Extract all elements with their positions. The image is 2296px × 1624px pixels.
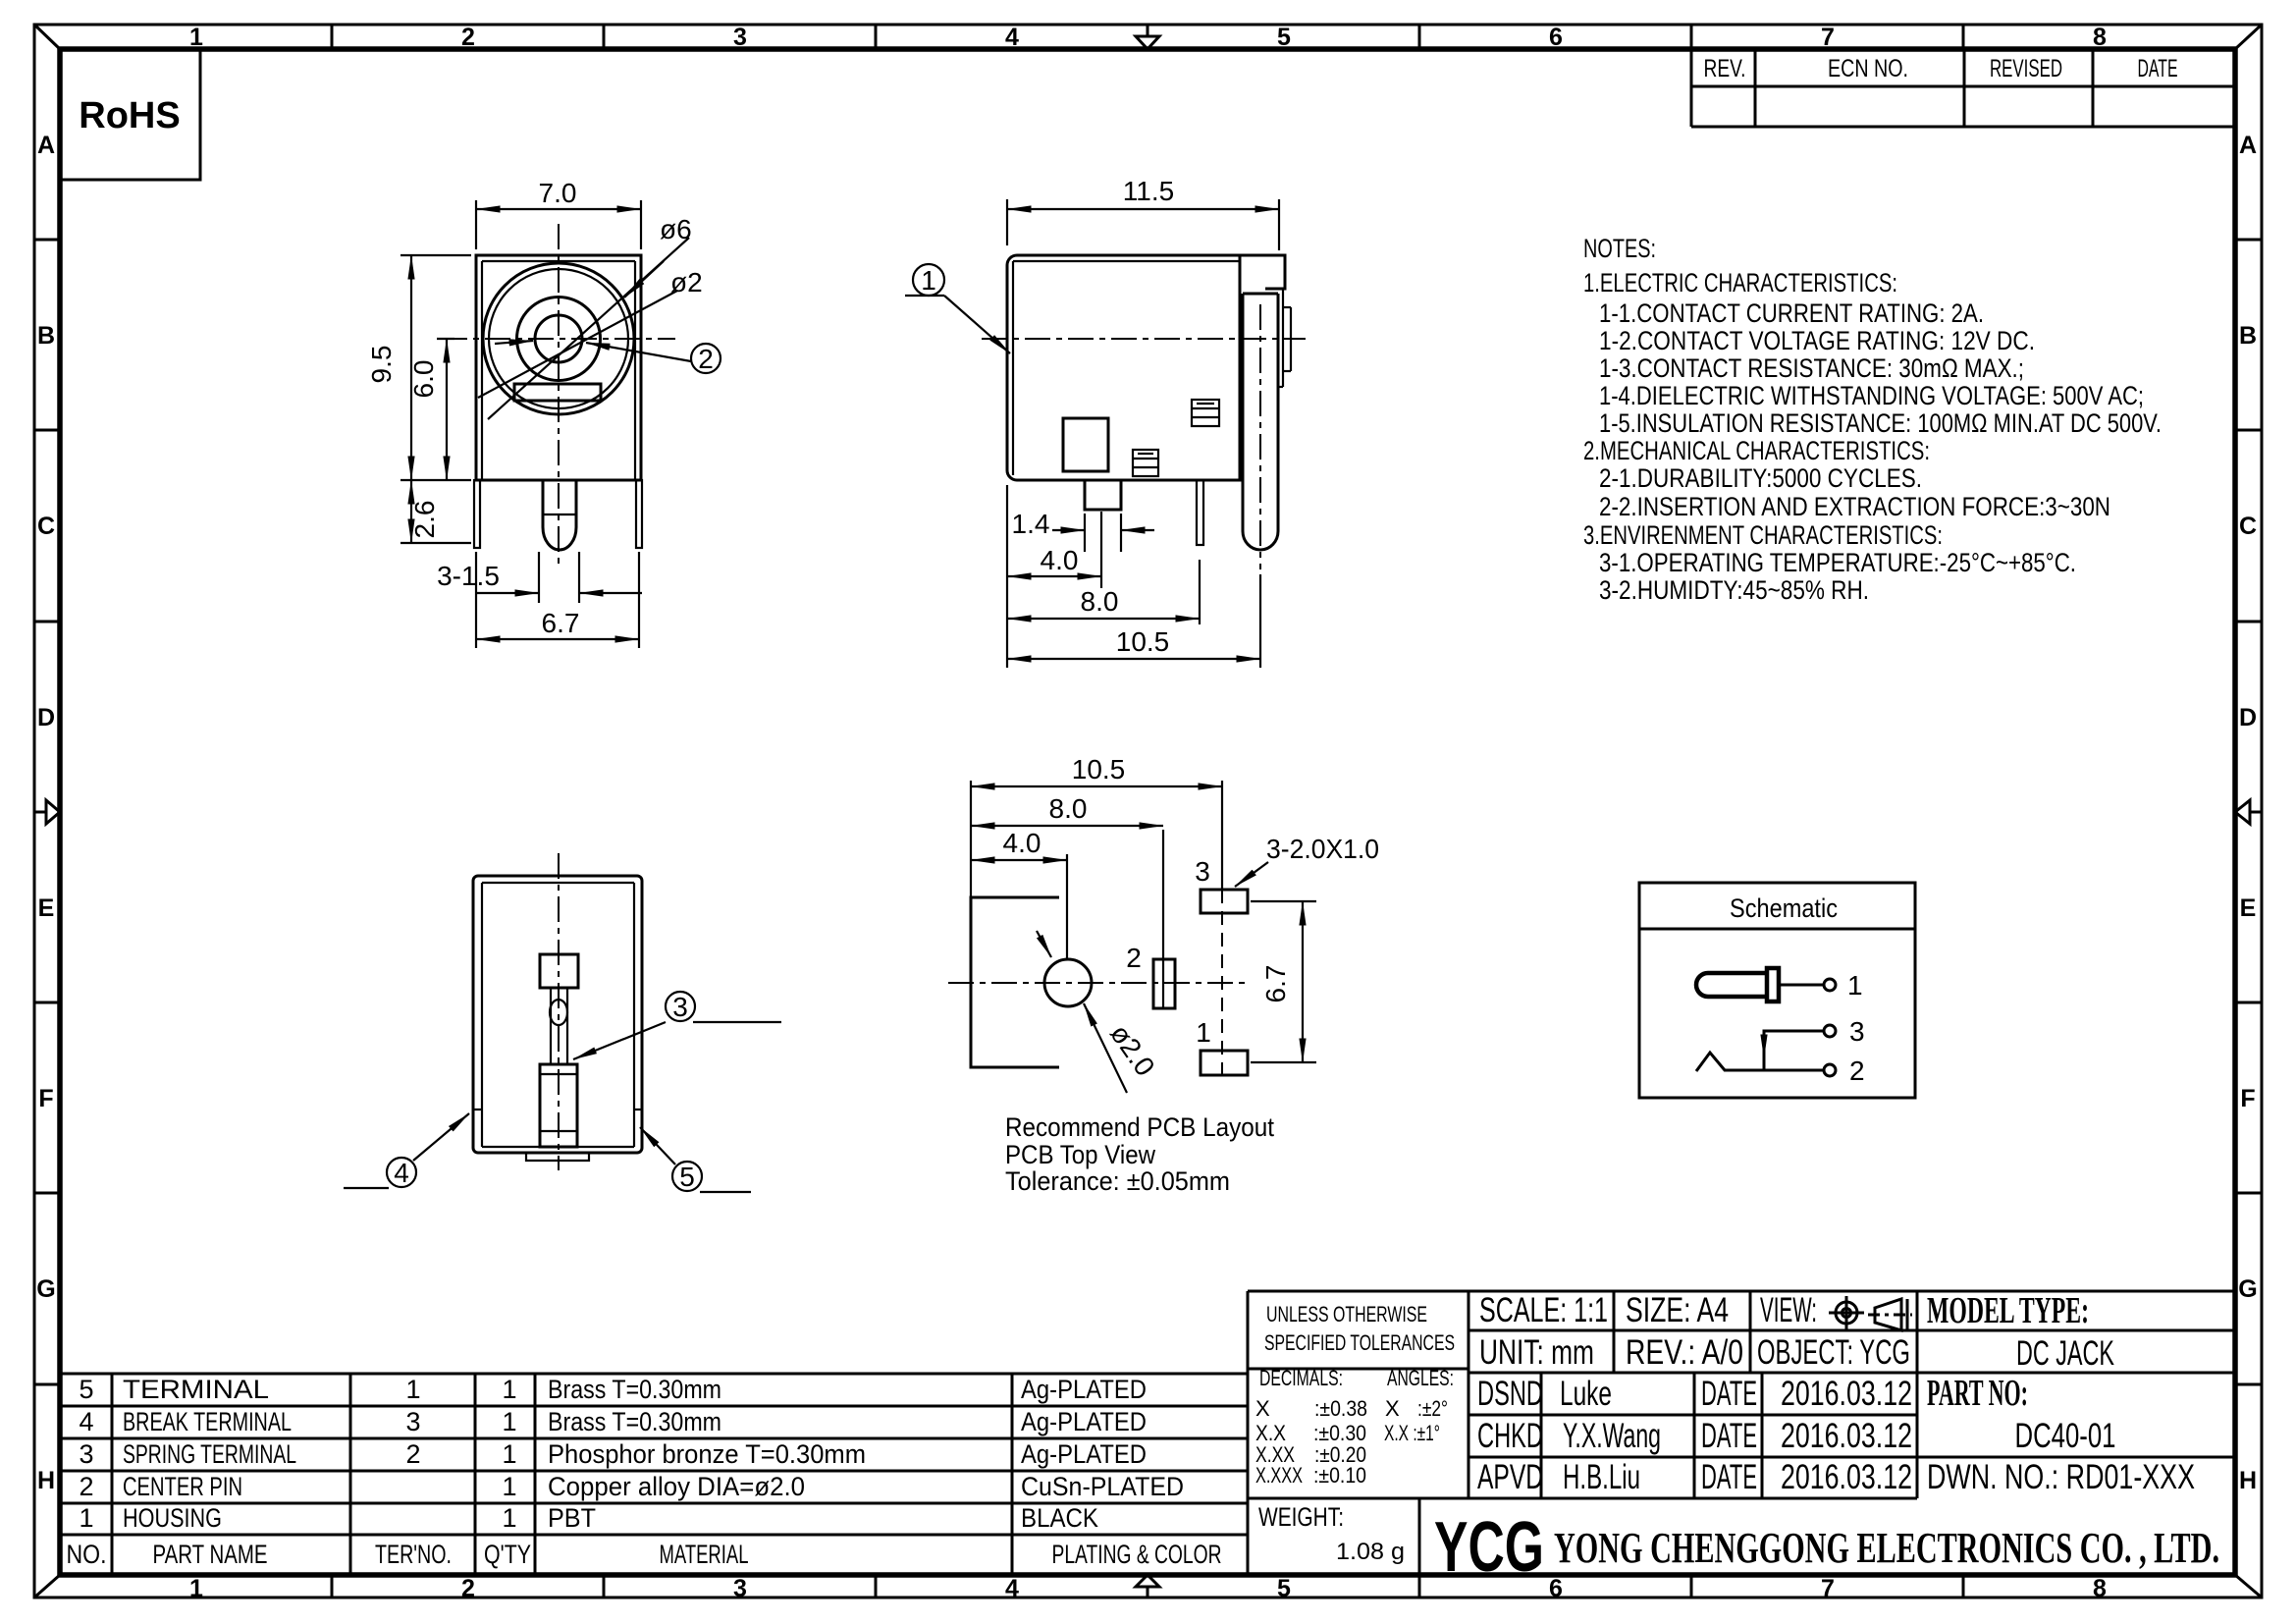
svg-text:1-4.DIELECTRIC WITHSTANDING: 1-4.DIELECTRIC WITHSTANDING VOLTAGE: 500… [1599,381,2144,410]
svg-text:2.MECHANICAL CHARACTERISTICS:: 2.MECHANICAL CHARACTERISTICS: [1583,436,1930,465]
svg-text:3-2.HUMIDTY:45~85% RH.: 3-2.HUMIDTY:45~85% RH. [1599,575,1869,605]
svg-text:X.XXX: X.XXX [1255,1463,1303,1488]
svg-text:NOTES:: NOTES: [1583,234,1656,263]
svg-text:3-1.OPERATING TEMPERATURE:-25: 3-1.OPERATING TEMPERATURE:-25°C~+85°C. [1599,548,2076,577]
svg-text:ECN NO.: ECN NO. [1828,55,1908,82]
svg-text:1: 1 [189,24,203,51]
svg-text:DATE: DATE [1701,1417,1757,1455]
svg-text:F: F [38,1085,53,1112]
svg-text:DATE: DATE [1701,1458,1757,1496]
svg-text:1: 1 [502,1439,516,1469]
svg-text:1.4: 1.4 [1012,509,1050,539]
svg-text::±2°: :±2° [1417,1396,1448,1421]
svg-text:1: 1 [1847,970,1863,1001]
svg-text:10.5: 10.5 [1072,754,1126,785]
svg-text:E: E [2240,894,2257,922]
svg-text:Phosphor bronze T=0.30mm: Phosphor bronze T=0.30mm [548,1439,866,1469]
svg-text:3: 3 [1195,856,1210,887]
svg-text:NO.: NO. [67,1540,107,1569]
svg-text:6.7: 6.7 [1260,965,1291,1003]
svg-text:G: G [36,1275,55,1303]
svg-text:9.5: 9.5 [366,346,397,384]
svg-text:1: 1 [502,1375,516,1404]
svg-text:2-1.DURABILITY:5000 CYCLES.: 2-1.DURABILITY:5000 CYCLES. [1599,463,1922,493]
svg-text:7: 7 [1821,24,1835,51]
svg-text:Schematic: Schematic [1730,893,1838,923]
svg-text:Brass T=0.30mm: Brass T=0.30mm [548,1375,721,1404]
svg-text:3-1.5: 3-1.5 [437,561,500,591]
svg-text:1: 1 [921,265,936,296]
svg-text:2016.03.12: 2016.03.12 [1781,1458,1912,1496]
svg-text:2016.03.12: 2016.03.12 [1781,1375,1912,1413]
svg-text:G: G [2238,1275,2257,1303]
svg-text:5: 5 [79,1375,93,1404]
svg-text:2016.03.12: 2016.03.12 [1781,1417,1912,1455]
svg-text:6: 6 [1549,24,1563,51]
svg-text:2: 2 [405,1439,420,1469]
svg-text:CHKD: CHKD [1477,1417,1543,1455]
svg-text:CuSn-PLATED: CuSn-PLATED [1021,1472,1184,1501]
svg-text:6: 6 [1549,1575,1563,1602]
svg-text:7: 7 [1821,1575,1835,1602]
svg-text:1: 1 [405,1375,420,1404]
svg-text:SCALE: 1:1: SCALE: 1:1 [1479,1291,1608,1329]
svg-text:7.0: 7.0 [539,178,577,208]
svg-text:3: 3 [733,1575,747,1602]
svg-text:B: B [37,322,55,350]
svg-text:ø6: ø6 [660,214,692,244]
svg-text:1: 1 [189,1575,203,1602]
svg-text:8: 8 [2093,1575,2107,1602]
svg-text:X: X [1385,1396,1400,1421]
svg-text:B: B [2239,322,2257,350]
svg-text:Y.X.Wang: Y.X.Wang [1563,1417,1661,1455]
svg-text:VIEW:: VIEW: [1760,1291,1817,1329]
svg-text:DC JACK: DC JACK [2016,1334,2114,1373]
svg-text:1-1.CONTACT CURRENT RATING:: 1-1.CONTACT CURRENT RATING: 2A. [1599,298,1984,328]
svg-text:C: C [2239,513,2257,540]
svg-text:CENTER PIN: CENTER PIN [123,1472,242,1501]
svg-text::±0.10: :±0.10 [1313,1463,1366,1488]
svg-text:F: F [2240,1085,2255,1112]
svg-text:DATE: DATE [1701,1375,1757,1413]
svg-text:3: 3 [1849,1016,1865,1047]
svg-text:6.0: 6.0 [408,360,439,399]
svg-text:C: C [37,513,55,540]
svg-text:Luke: Luke [1560,1375,1612,1413]
svg-text:3-2.0X1.0: 3-2.0X1.0 [1266,834,1379,864]
svg-text:YCG: YCG [1434,1508,1544,1587]
svg-text:2: 2 [1849,1056,1865,1086]
svg-text:PART NAME: PART NAME [153,1540,268,1569]
svg-text:1: 1 [502,1407,516,1436]
svg-text:Ag-PLATED: Ag-PLATED [1021,1439,1147,1469]
svg-text:YONG CHENGGONG ELECTRONICS: YONG CHENGGONG ELECTRONICS CO. , LTD. [1554,1524,2219,1572]
svg-text:1.ELECTRIC CHARACTERISTICS:: 1.ELECTRIC CHARACTERISTICS: [1583,268,1897,298]
svg-text:RoHS: RoHS [79,95,180,136]
svg-text:PLATING & COLOR: PLATING & COLOR [1052,1540,1222,1569]
svg-text::±0.38: :±0.38 [1314,1396,1367,1421]
svg-text:E: E [38,894,55,922]
svg-text:X: X [1255,1396,1270,1421]
svg-text:Recommend PCB Layout: Recommend PCB Layout [1005,1112,1274,1142]
svg-text:H: H [37,1467,55,1494]
svg-text:5: 5 [679,1162,695,1192]
svg-text:4: 4 [1005,24,1019,51]
svg-text:4: 4 [394,1158,409,1188]
svg-text:Ag-PLATED: Ag-PLATED [1021,1407,1147,1436]
svg-text:X.X :±1°: X.X :±1° [1384,1421,1440,1445]
svg-text:11.5: 11.5 [1123,176,1174,206]
svg-text:MODEL TYPE:: MODEL TYPE: [1927,1290,2089,1331]
svg-text:ø2: ø2 [670,267,703,298]
svg-text:2-2.INSERTION AND EXTRACTION: 2-2.INSERTION AND EXTRACTION FORCE:3~30N [1599,492,2110,521]
svg-text:4: 4 [79,1407,93,1436]
svg-text:4: 4 [1005,1575,1019,1602]
svg-text:5: 5 [1277,1575,1291,1602]
svg-text:3: 3 [79,1439,93,1469]
svg-text:REVISED: REVISED [1990,55,2062,82]
svg-text:3: 3 [672,992,688,1022]
svg-text:WEIGHT:: WEIGHT: [1258,1502,1344,1532]
svg-text:TER'NO.: TER'NO. [375,1540,452,1569]
svg-text:8: 8 [2093,24,2107,51]
svg-text:DATE: DATE [2138,55,2178,82]
svg-text:8.0: 8.0 [1081,586,1119,617]
svg-text:10.5: 10.5 [1116,626,1170,657]
svg-text:2.6: 2.6 [409,501,440,539]
svg-text:BLACK: BLACK [1021,1503,1098,1533]
svg-text:PBT: PBT [548,1503,596,1533]
svg-text:D: D [2239,704,2257,731]
svg-text:Ag-PLATED: Ag-PLATED [1021,1375,1147,1404]
svg-text:2: 2 [461,1575,475,1602]
svg-text:BREAK TERMINAL: BREAK TERMINAL [123,1407,292,1436]
svg-text:SPECIFIED TOLERANCES: SPECIFIED TOLERANCES [1264,1330,1455,1355]
svg-text:APVD: APVD [1477,1458,1543,1496]
svg-text:6.7: 6.7 [542,608,580,638]
svg-text:A: A [37,132,55,159]
svg-text:DC40-01: DC40-01 [2015,1417,2116,1455]
svg-text:2: 2 [79,1472,93,1501]
svg-text:1-2.CONTACT VOLTAGE RATING:: 1-2.CONTACT VOLTAGE RATING: 12V DC. [1599,326,2035,355]
svg-text:OBJECT: YCG: OBJECT: YCG [1757,1333,1910,1372]
svg-text:REV.: REV. [1704,55,1746,82]
svg-text:ANGLES:: ANGLES: [1387,1366,1454,1390]
svg-text:2: 2 [1126,943,1142,973]
svg-text:REV.: A/0: REV.: A/0 [1626,1333,1743,1372]
svg-text:UNIT: mm: UNIT: mm [1479,1333,1594,1372]
svg-text:Copper alloy DIA=ø2.0: Copper alloy DIA=ø2.0 [548,1472,805,1501]
svg-text:1.08 g: 1.08 g [1336,1539,1405,1565]
svg-text:8.0: 8.0 [1049,793,1088,824]
svg-text:DWN. NO.: RD01-XXX: DWN. NO.: RD01-XXX [1927,1458,2195,1496]
svg-text:4.0: 4.0 [1041,545,1079,575]
svg-text:5: 5 [1277,24,1291,51]
svg-text:HOUSING: HOUSING [123,1503,222,1533]
svg-text:Q'TY: Q'TY [484,1540,531,1569]
svg-text:UNLESS OTHERWISE: UNLESS OTHERWISE [1266,1302,1427,1326]
svg-text:4.0: 4.0 [1003,828,1041,858]
svg-text:2: 2 [698,344,714,374]
svg-text:3: 3 [733,24,747,51]
svg-text:SPRING TERMINAL: SPRING TERMINAL [123,1439,296,1469]
svg-text:A: A [2239,132,2257,159]
svg-text:DSND: DSND [1477,1375,1543,1413]
svg-text:1: 1 [79,1503,93,1533]
svg-text:3: 3 [405,1407,420,1436]
svg-text:1-5.INSULATION RESISTANCE: 1: 1-5.INSULATION RESISTANCE: 100MΩ MIN.AT … [1599,408,2162,438]
svg-text:2: 2 [461,24,475,51]
svg-text:DECIMALS:: DECIMALS: [1259,1366,1343,1390]
svg-text:1-3.CONTACT RESISTANCE: 30mΩ: 1-3.CONTACT RESISTANCE: 30mΩ MAX.; [1599,353,2024,383]
svg-text:PCB Top View: PCB Top View [1005,1140,1155,1169]
svg-text:MATERIAL: MATERIAL [660,1540,749,1569]
svg-text:D: D [37,704,55,731]
svg-text:1: 1 [502,1503,516,1533]
svg-text:Tolerance: ±0.05mm: Tolerance: ±0.05mm [1005,1166,1230,1196]
svg-text:Brass T=0.30mm: Brass T=0.30mm [548,1407,721,1436]
svg-text:1: 1 [1196,1017,1211,1048]
svg-text:3.ENVIRENMENT CHARACTERISTICS: 3.ENVIRENMENT CHARACTERISTICS: [1583,520,1943,550]
svg-text:H.B.Liu: H.B.Liu [1563,1458,1640,1496]
svg-text:H: H [2239,1467,2257,1494]
svg-text:SIZE: A4: SIZE: A4 [1626,1291,1729,1329]
svg-text:PART NO:: PART NO: [1927,1373,2028,1414]
svg-text:TERMINAL: TERMINAL [123,1375,269,1404]
svg-text:1: 1 [502,1472,516,1501]
